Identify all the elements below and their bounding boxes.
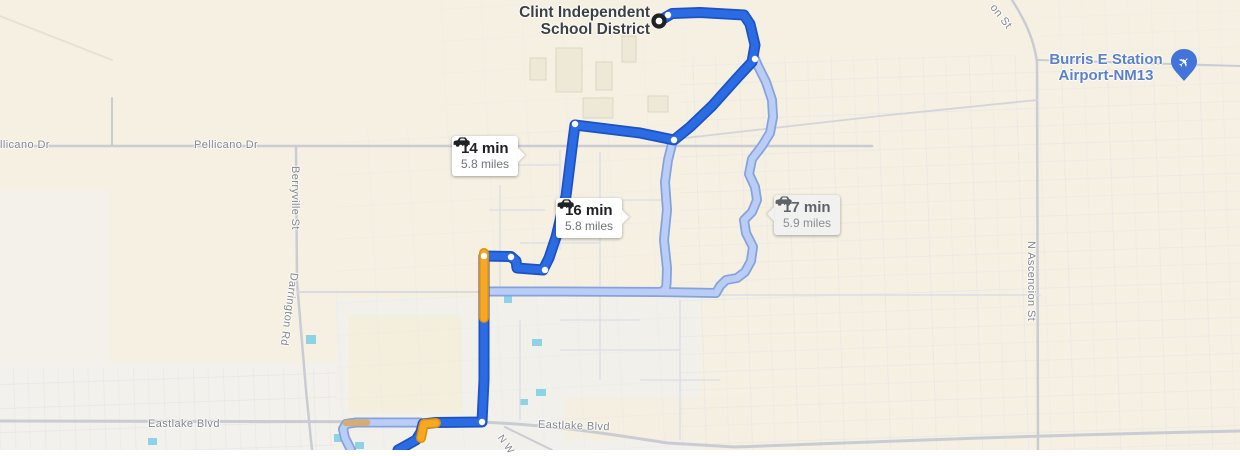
route-badge-17[interactable]: 17 min 5.9 miles bbox=[774, 195, 840, 235]
land-zone bbox=[0, 190, 110, 362]
airport-label-line1: Burris E Station bbox=[1018, 52, 1194, 68]
route-17-distance: 5.9 miles bbox=[783, 217, 831, 230]
route-14-distance: 5.8 miles bbox=[461, 158, 509, 171]
street-label-ascencion: N Ascencion St bbox=[1025, 241, 1037, 321]
route-16-distance: 5.8 miles bbox=[565, 220, 613, 233]
destination-ring-marker[interactable] bbox=[654, 16, 665, 27]
car-icon bbox=[774, 195, 793, 208]
map-canvas[interactable]: ✈ Clint Independent School District Burr… bbox=[0, 0, 1240, 450]
street-grid bbox=[1040, 0, 1240, 55]
car-icon bbox=[556, 198, 575, 211]
destination-label-line1: Clint Independent bbox=[450, 4, 650, 21]
route-16-time-row: 16 min bbox=[565, 202, 613, 219]
route-badge-14[interactable]: 14 min 5.8 miles bbox=[452, 136, 518, 176]
destination-label-line2: School District bbox=[450, 21, 650, 38]
street-label-eastlake-left: Eastlake Blvd bbox=[148, 418, 220, 430]
route-14-time-row: 14 min bbox=[461, 140, 509, 157]
street-label-eastlake-mid: Eastlake Blvd bbox=[538, 419, 610, 434]
alt-route-traffic-segment bbox=[346, 423, 367, 424]
street-label-pellicano: Pellicano Dr bbox=[194, 139, 258, 151]
route-badge-16[interactable]: 16 min 5.8 miles bbox=[556, 198, 622, 238]
street-label-pellicano-left: llicano Dr bbox=[0, 139, 50, 151]
street-grid bbox=[0, 368, 336, 450]
route-17-time-row: 17 min bbox=[783, 199, 831, 216]
street-label-berryville: Berryville St bbox=[289, 166, 301, 230]
airport-label-line2: Airport-NM13 bbox=[1018, 68, 1194, 84]
destination-label[interactable]: Clint Independent School District bbox=[450, 4, 650, 38]
car-icon bbox=[452, 136, 471, 149]
airport-label[interactable]: Burris E Station Airport-NM13 bbox=[1018, 52, 1194, 84]
street-grid bbox=[680, 55, 1240, 450]
